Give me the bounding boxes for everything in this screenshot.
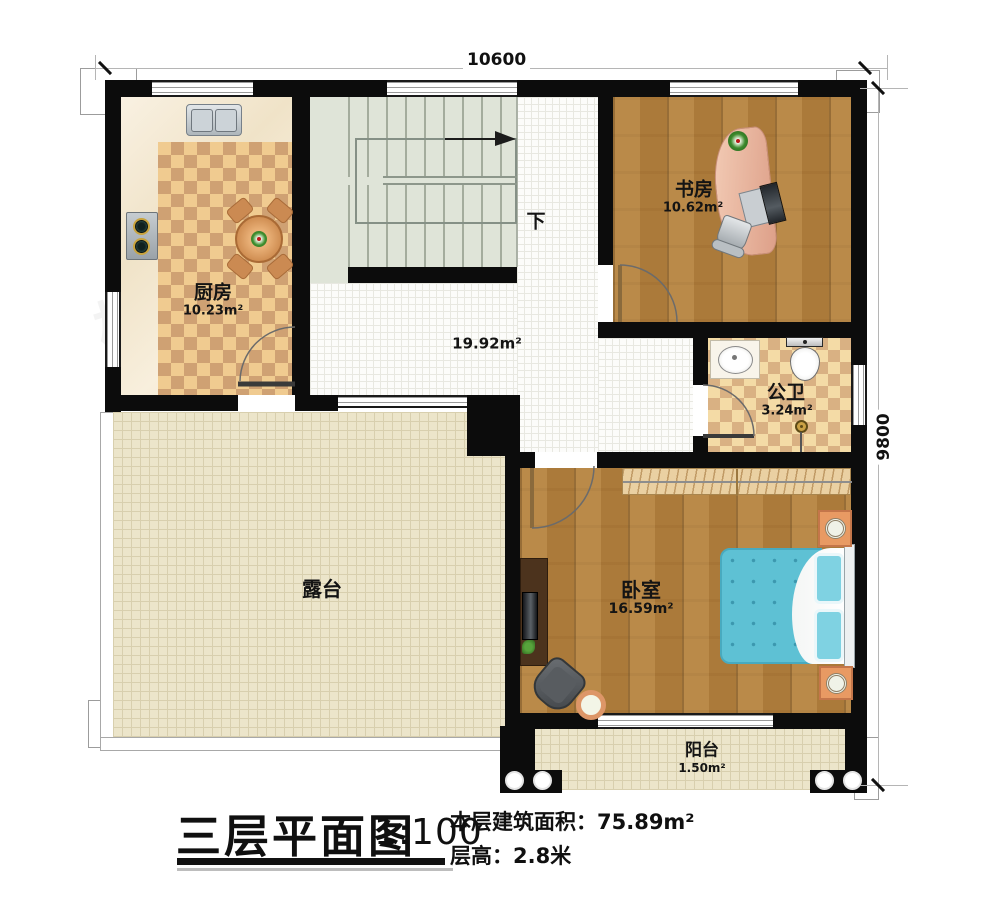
terrace-parapet bbox=[100, 412, 114, 751]
kitchen-sink bbox=[186, 104, 242, 136]
balcony-pillar bbox=[815, 771, 834, 790]
floor-plan-canvas: 柏竣建筑 柏竣建筑 柏竣建筑 柏竣建筑 bbox=[0, 0, 1000, 914]
bathroom-sink bbox=[710, 340, 760, 379]
bed-pillow bbox=[814, 553, 844, 604]
wall bbox=[467, 395, 520, 456]
nightstand bbox=[819, 666, 853, 700]
stove-burner bbox=[133, 218, 150, 235]
bathroom-label: 公卫 bbox=[767, 384, 805, 403]
bedroom-monitor bbox=[522, 592, 538, 640]
wall bbox=[105, 395, 238, 411]
terrace-parapet bbox=[100, 737, 505, 751]
floor-height-value: 2.8米 bbox=[513, 844, 571, 868]
kitchen-area: 10.23m² bbox=[183, 305, 243, 318]
bed-pillow bbox=[814, 609, 844, 662]
wall bbox=[517, 80, 670, 97]
window bbox=[105, 292, 121, 367]
wall bbox=[598, 97, 613, 265]
shower-pipe bbox=[800, 432, 802, 452]
stairs-down-label: 下 bbox=[526, 213, 545, 232]
dimension-extension bbox=[860, 88, 908, 89]
terrace-sliding-window bbox=[338, 395, 467, 408]
toilet bbox=[786, 337, 823, 381]
hallway-area: 19.92m² bbox=[452, 337, 522, 352]
floor-height-label: 层高： bbox=[450, 844, 513, 868]
wall bbox=[292, 97, 310, 395]
stair-treads-upper bbox=[348, 97, 517, 177]
title-underline bbox=[177, 858, 445, 865]
bedroom-stool bbox=[576, 690, 606, 720]
wall bbox=[693, 338, 708, 385]
bedroom-label: 卧室 bbox=[621, 580, 661, 600]
wall bbox=[105, 97, 121, 292]
wall bbox=[105, 80, 152, 97]
stair-treads-lower bbox=[348, 185, 517, 267]
wall bbox=[598, 322, 851, 338]
floor-height-line: 层高：2.8米 bbox=[450, 840, 571, 870]
bedroom-plant bbox=[522, 640, 535, 654]
dining-table bbox=[235, 215, 283, 263]
wall bbox=[253, 80, 387, 97]
dimension-extension bbox=[860, 785, 908, 786]
hallway-floor bbox=[517, 97, 598, 452]
floor-area-value: 75.89m² bbox=[597, 810, 695, 834]
wall bbox=[505, 452, 520, 713]
dimension-top-label: 10600 bbox=[463, 50, 530, 70]
dimension-extension bbox=[887, 55, 888, 80]
floor-area-line: 本层建筑面积：75.89m² bbox=[450, 806, 695, 836]
balcony-area: 1.50m² bbox=[678, 762, 725, 774]
study-label: 书房 bbox=[675, 181, 713, 200]
window bbox=[670, 80, 798, 97]
balcony-label: 阳台 bbox=[685, 743, 719, 760]
nightstand bbox=[818, 510, 852, 547]
table-plant bbox=[251, 231, 267, 247]
balcony-pillar bbox=[843, 771, 862, 790]
stove-burner bbox=[133, 238, 150, 255]
title-underline-shadow bbox=[177, 868, 453, 871]
floor-area-label: 本层建筑面积： bbox=[450, 810, 597, 834]
dimension-right-label: 9800 bbox=[874, 409, 894, 464]
bed-headboard bbox=[844, 544, 855, 668]
balcony-pillar bbox=[505, 771, 524, 790]
wall bbox=[295, 395, 338, 411]
sink-basin bbox=[215, 109, 237, 132]
kitchen-label: 厨房 bbox=[194, 284, 232, 303]
bedroom-area: 16.59m² bbox=[608, 602, 673, 616]
window bbox=[851, 365, 867, 425]
sink-basin bbox=[191, 109, 213, 132]
hallway-floor bbox=[598, 338, 693, 452]
window bbox=[387, 80, 517, 97]
wall bbox=[348, 267, 517, 283]
bed bbox=[720, 548, 855, 664]
kitchen-stove bbox=[126, 212, 158, 260]
wall bbox=[597, 452, 851, 468]
wall bbox=[851, 80, 867, 365]
terrace-floor bbox=[113, 412, 505, 737]
wardrobe bbox=[622, 468, 851, 495]
bathroom-area: 3.24m² bbox=[761, 405, 812, 418]
desk-plant bbox=[728, 131, 748, 151]
terrace-label: 露台 bbox=[302, 579, 342, 599]
study-area: 10.62m² bbox=[663, 202, 723, 215]
wall bbox=[693, 436, 708, 452]
balcony-sliding-door bbox=[598, 713, 773, 729]
balcony-pillar bbox=[533, 771, 552, 790]
window bbox=[152, 80, 253, 97]
dimension-extension bbox=[95, 55, 96, 80]
